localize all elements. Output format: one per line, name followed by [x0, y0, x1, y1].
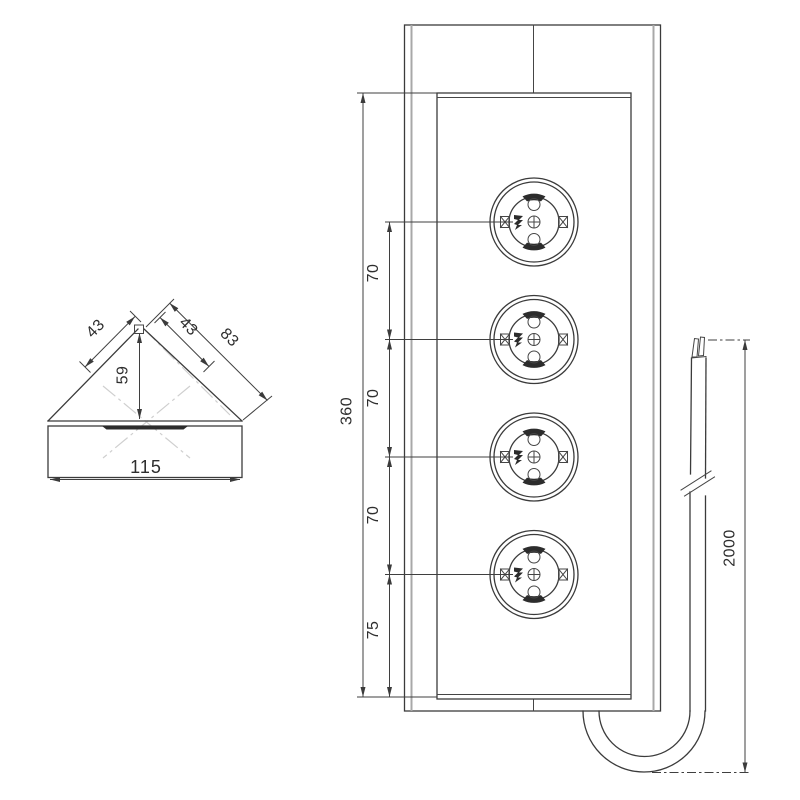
socket-panel: [437, 93, 631, 699]
ext-line: [146, 299, 174, 327]
ext-line: [243, 396, 272, 420]
front-view: 360 70 70 70 75: [339, 25, 661, 711]
dim-label-pitch1: 70: [365, 264, 382, 283]
dim-label-bottom-offset: 75: [365, 621, 382, 640]
cable-outer-bend: [583, 711, 705, 772]
housing-outline: [405, 25, 661, 711]
dim-label-left-face: 43: [83, 316, 108, 341]
dim-label-outer-face: 83: [217, 325, 242, 350]
corner-view: 59 43 43 83 115: [48, 299, 272, 480]
dim-line-outer-face: [170, 303, 268, 401]
dim-label-pitch2: 70: [365, 389, 382, 408]
cable-left-edge-upper: [691, 358, 692, 474]
cable-break-icon: [681, 471, 715, 496]
dim-label-right-face: 43: [176, 314, 201, 339]
cable-right-edge-upper: [706, 358, 707, 478]
dim-label-depth: 59: [115, 366, 132, 385]
apex-detail: [135, 325, 144, 334]
dim-label-cable-length: 2000: [722, 529, 739, 567]
base-slot: [102, 426, 188, 430]
drawing-canvas: 59 43 43 83 115: [0, 0, 800, 800]
dim-label-height: 360: [339, 397, 356, 425]
power-cable: 2000: [583, 337, 750, 773]
dim-label-pitch3: 70: [365, 506, 382, 525]
cable-inner-bend: [599, 711, 690, 757]
cable-strip-end: [692, 337, 707, 358]
dim-label-width: 115: [130, 457, 162, 477]
technical-drawing: 59 43 43 83 115: [0, 0, 800, 800]
